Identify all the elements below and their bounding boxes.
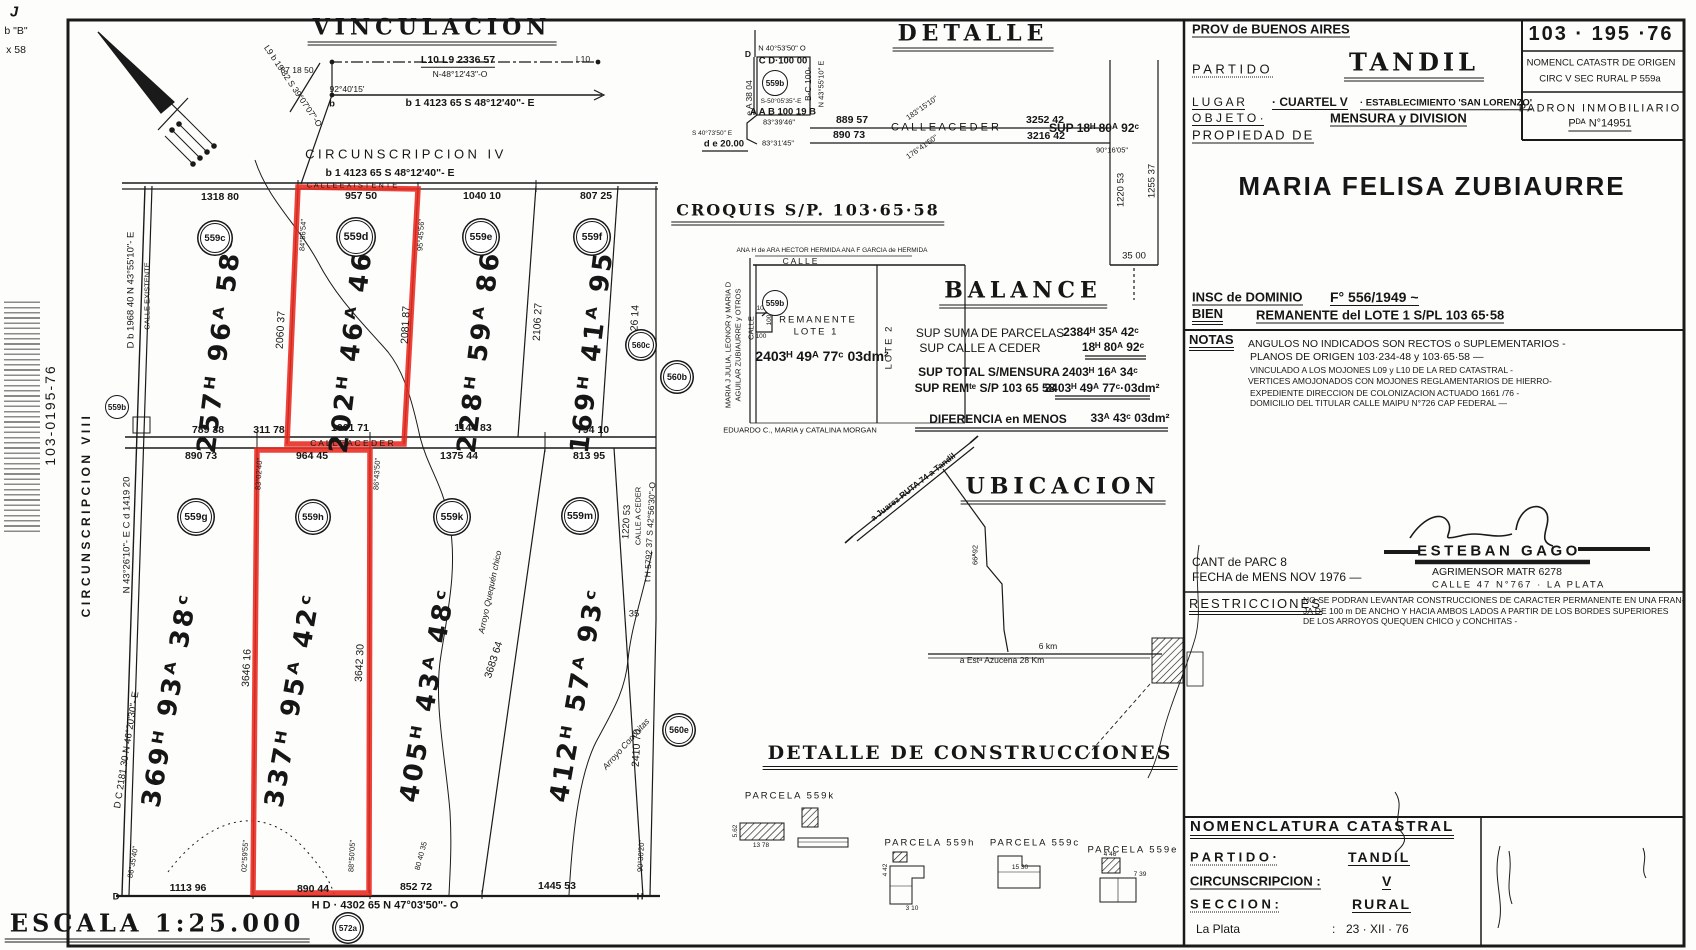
panel-lugar-value: · CUARTEL V: [1272, 96, 1348, 110]
bal-row3-label: SUP TOTAL S/MENSURA: [918, 366, 1060, 378]
dim-852-72: 852 72: [400, 882, 432, 893]
balance-title: BALANCE: [939, 280, 1107, 309]
dim-1001-71: 1001 71: [331, 423, 369, 434]
cr-calle: C A L L E: [783, 257, 818, 266]
dim-789-38: 789 38: [192, 425, 224, 436]
dt-889-57: 889 57: [836, 115, 868, 126]
panel-restricciones-label: RESTRICCIONES: [1189, 597, 1322, 615]
angle-88-50: 88°50'05": [347, 840, 356, 872]
con-dim-1378: 13 78: [753, 843, 769, 850]
con-dim-310: 3 10: [906, 906, 919, 913]
cr-100-b: 100: [767, 315, 774, 326]
cr-calle-vert: CALLE: [747, 316, 755, 340]
dim-3642-30: 3642 30: [354, 644, 366, 682]
panel-surveyor-address: CALLE 47 N°767 · LA PLATA: [1432, 580, 1605, 590]
dt-sup: SUP 18ᴴ 80ᴬ 92ᶜ: [1049, 122, 1139, 134]
panel-bien-value: REMANENTE del LOTE 1 S/PL 103 65·58: [1256, 309, 1504, 324]
panel-restricciones-1: NO SE PODRAN LEVANTAR CONSTRUCCIONES DE …: [1303, 596, 1684, 605]
dim-2106-27: 2106 27: [532, 303, 544, 341]
calle-existente-top: C A L L E E X I S T E N T E: [307, 181, 398, 189]
dt-angle-8331: 83°31'45": [762, 139, 794, 147]
ub-azucena: a Estᵃ Azucena 28 Km: [960, 656, 1044, 665]
con-dim-446: 4 46: [1104, 852, 1117, 859]
corner-mark-x58: x 58: [6, 45, 26, 56]
bearing-left-1: D b 1968 40 N 43°55'10"- E: [126, 232, 136, 349]
dt-ab-100: A A B 100 19 B: [750, 107, 816, 117]
dim-890-73: 890 73: [185, 451, 217, 462]
con-parcela-559e: PARCELA 559e: [1088, 845, 1179, 855]
nc-partido-label: P A R T I D O ·: [1190, 851, 1277, 866]
dim-2081-87: 2081 87: [400, 306, 412, 344]
parcel-badge-572a: 572a: [335, 915, 361, 941]
dim-1445-53: 1445 53: [538, 881, 576, 892]
panel-notas-label: NOTAS: [1189, 333, 1234, 351]
dim-2060-37: 2060 37: [275, 311, 287, 349]
dt-angle-8339: 83°39'46": [763, 118, 795, 126]
dt-bearing-n43: N 43°55'10" E: [817, 61, 825, 108]
con-dim-1530: 15 30: [1012, 865, 1028, 872]
panel-partido-value: TANDIL: [1344, 51, 1484, 82]
ubicacion-title: UBICACION: [961, 476, 1166, 505]
dim-1318-80: 1318 80: [201, 192, 239, 203]
parcel-badge-559k: 559k: [436, 501, 468, 533]
dim-957-50: 957 50: [345, 191, 377, 202]
corner-mark-j: J: [10, 5, 18, 20]
cr-names-top: ANA H de ARA HECTOR HERMIDA ANA F GARCIA…: [737, 248, 928, 255]
approval-signature-marks: [1395, 792, 1646, 928]
ub-6km: 6 km: [1039, 642, 1057, 651]
parcel-badge-559b: 559b: [762, 290, 788, 316]
angle-red1-tl: 84°56'54": [298, 219, 307, 251]
parcel-badge-559e: 559e: [465, 221, 497, 253]
bal-row2-label: SUP CALLE A CEDER: [919, 342, 1040, 354]
dt-1220-53: 1220 53: [1116, 173, 1126, 207]
dt-calle-a-ceder: C A L L E A C E D E R: [891, 123, 999, 134]
margin-stamp-block: [4, 300, 40, 532]
ub-66a92: 66ᴬ92: [971, 545, 979, 565]
dim-807-25: 807 25: [580, 191, 612, 202]
panel-insc-label: INSC de DOMINIO: [1192, 291, 1303, 306]
dim-813-95: 813 95: [573, 451, 605, 462]
dt-35-00: 35 00: [1122, 251, 1146, 261]
nc-place: La Plata: [1196, 923, 1240, 935]
circunscripcion-iv: CIRCUNSCRIPCION IV: [305, 148, 507, 161]
escala: ESCALA 1:25.000: [5, 912, 310, 943]
panel-notas-3: VINCULADO A LOS MOJONES L09 y L10 DE LA …: [1250, 366, 1513, 375]
panel-notas-4: VERTICES AMOJONADOS CON MOJONES REGLAMEN…: [1248, 377, 1552, 386]
angle-red2-tr: 86°43'50": [372, 458, 381, 490]
nc-colon: :: [1332, 923, 1335, 935]
angle-red1-tr: 95°45'56": [416, 219, 425, 251]
panel-surveyor-name: ESTEBAN GAGO: [1417, 544, 1581, 559]
panel-owner: MARIA FELISA ZUBIAURRE: [1238, 173, 1625, 199]
cr-remanente: REMANENTE: [779, 315, 857, 325]
con-dim-442: 4 42: [883, 864, 890, 877]
vinculacion-diagram: [290, 60, 604, 184]
parcel-badge-560e: 560e: [665, 716, 693, 744]
panel-notas-6: DOMICILIO DEL TITULAR CALLE MAIPU N°726 …: [1250, 399, 1507, 408]
vinc-b1-line: b 1 4123 65 S 48°12'40"- E: [405, 98, 534, 109]
parcel-badge-559m: 559m: [564, 500, 596, 532]
panel-restricciones-2: JA DE 100 m DE ANCHO Y HACIA AMBOS LADOS…: [1303, 607, 1668, 616]
panel-padron-1: PADRON INMOBILIARIO: [1519, 104, 1681, 115]
bal-row5-value: 33ᴬ 43ᶜ 03dm²: [1090, 412, 1169, 424]
construcciones-sketches: [740, 808, 1136, 904]
nc-seccion-value: RURAL: [1352, 897, 1411, 913]
panel-padron-2: Pᴰᴬ N°14951: [1568, 119, 1631, 132]
panel-prov: PROV de BUENOS AIRES: [1192, 23, 1350, 38]
con-parcela-559k: PARCELA 559k: [745, 791, 835, 801]
dt-1255-37: 1255 37: [1147, 164, 1157, 198]
panel-plan-number: 103 · 195 ·76: [1529, 24, 1674, 44]
vinculacion-title: VINCULACION: [308, 17, 557, 46]
dim-1113-96: 1113 96: [170, 883, 207, 894]
panel-bien-label: BIEN: [1192, 307, 1223, 325]
angle-02-59: 02°59'55": [240, 840, 249, 872]
panel-insc-value: F° 556/1949 ~: [1330, 290, 1419, 306]
cr-names-left-1: MARIA J JULIA, LEONOR y MARIA D: [724, 282, 732, 408]
surveyor-signature: [1410, 507, 1553, 546]
dim-1144-83: 1144 83: [454, 423, 491, 434]
vinc-l10: L10: [576, 55, 590, 64]
bearing-left-2: N 43°26'10"- E C d 1419 20: [122, 477, 132, 594]
vinc-angle-92: 92°40'15': [329, 85, 364, 94]
con-dim-562: 5.62: [733, 825, 740, 838]
dim-890-44: 890 44: [297, 884, 329, 895]
dt-point-d: D: [745, 50, 751, 59]
cr-superficie: 2403ᴴ 49ᴬ 77ᶜ 03dm²: [755, 349, 888, 363]
dim-311-78: 311 78: [253, 425, 285, 436]
panel-notas-5: EXPEDIENTE DIRECCION DE COLONIZACION ACT…: [1250, 389, 1519, 398]
parcel-badge-559c: 559c: [200, 223, 230, 253]
reg-number-vertical: 103-0195-76: [43, 364, 57, 465]
detalle-title: DETALLE: [893, 23, 1054, 52]
panel-partido-label: PARTIDO: [1192, 63, 1273, 78]
dim-964-45: 964 45: [296, 451, 328, 462]
panel-nomencl-2: CIRC V SEC RURAL P 559a: [1539, 74, 1660, 84]
vinc-point-b: b: [329, 99, 335, 109]
calle-a-ceder-right: CALLE A CEDER: [634, 487, 642, 545]
dt-cd-100: C D·100 00: [759, 56, 808, 66]
panel-surveyor-title: AGRIMENSOR MATR 6278: [1432, 567, 1562, 578]
map-bearing-top: b 1 4123 65 S 48°12'40"- E: [325, 168, 454, 179]
bal-row2-value: 18ᴴ 80ᴬ 92ᶜ: [1082, 341, 1144, 353]
dt-s50: S-50°05'35"-E: [761, 99, 802, 106]
panel-fecha-mens: FECHA de MENS NOV 1976 —: [1192, 571, 1361, 583]
angle-red2-tl: 83°02'40": [254, 458, 263, 490]
dim-1040-10: 1040 10: [463, 191, 501, 202]
parcel-badge-559f: 559f: [576, 221, 608, 253]
corner-mark-b: b "B": [4, 26, 27, 37]
nc-circ-value: V: [1382, 874, 1391, 890]
calle-existente-left: CALLE EXISTENTE: [143, 262, 151, 330]
dt-angle-9016: 90°16'05": [1096, 146, 1128, 154]
bal-row1-value: 2384ᴴ 35ᴬ 42ᶜ: [1063, 326, 1139, 338]
panel-propiedad-label: PROPIEDAD DE: [1192, 129, 1314, 144]
dim-35: 35: [629, 609, 640, 619]
parcel-map-lines: [116, 180, 660, 899]
dt-bearing-n40: N 40°53'50" O: [758, 44, 806, 52]
panel-lugar-value2: · ESTABLECIMIENTO 'SAN LORENZO': [1360, 98, 1532, 110]
nomenclatura-title: NOMENCLATURA CATASTRAL: [1190, 819, 1454, 839]
nc-seccion-label: S E C C I O N :: [1190, 898, 1279, 913]
nc-partido-value: TANDIL: [1348, 850, 1410, 866]
parcel-badge-559b: 559b: [762, 70, 788, 96]
point-d: D: [113, 892, 120, 902]
cr-lote1: LOTE 1: [794, 327, 839, 337]
construcciones-title: DETALLE DE CONSTRUCCIONES: [763, 744, 1178, 770]
cr-lote2: LOTE 2: [884, 325, 894, 370]
parcel-badge-559b: 559b: [105, 395, 129, 419]
panel-lugar-label: L U G A R: [1192, 96, 1245, 110]
con-parcela-559h: PARCELA 559h: [885, 838, 976, 848]
panel-notas-1: ANGULOS NO INDICADOS SON RECTOS o SUPLEM…: [1248, 339, 1566, 350]
parcel-badge-560b: 560b: [663, 363, 691, 391]
dim-1220-53-map: 1220 53: [621, 505, 632, 540]
nc-date: 23 · XII · 76: [1346, 923, 1409, 935]
survey-plan-sheet: Jb "B"x 58103-0195-76CIRCUNSCRIPCION VII…: [0, 0, 1696, 950]
croquis-title: CROQUIS S/P. 103·65·58: [671, 203, 944, 226]
dt-de-20: d e 20.00: [704, 139, 744, 149]
panel-nomencl-1: NOMENCL CATASTR DE ORIGEN: [1527, 58, 1676, 68]
nc-circ-label: CIRCUNSCRIPCION :: [1190, 875, 1321, 890]
dim-3646-16: 3646 16: [241, 649, 253, 687]
cr-names-left-2: AGUILAR ZUBIAURRE y OTROS: [734, 289, 742, 402]
cr-names-bottom: EDUARDO C., MARIA y CATALINA MORGAN: [723, 426, 877, 434]
cr-100-c: 100: [756, 334, 767, 341]
angle-90-30: 90°30'20": [636, 840, 645, 872]
map-bearing-bottom: H D · 4302 65 N 47°03'50"- O: [312, 901, 459, 912]
panel-restricciones-3: DE LOS ARROYOS QUEQUEN CHICO y CONCHITAS…: [1303, 617, 1517, 626]
bal-row1-label: SUP SUMA DE PARCELAS: [916, 327, 1064, 339]
vinc-l10-l9: L10 L9 2336 57: [421, 55, 495, 68]
parcel-badge-559d: 559d: [339, 220, 373, 254]
panel-objeto-label: O B J E T O ·: [1192, 112, 1264, 126]
parcel-badge-559h: 559h: [298, 502, 328, 532]
parcel-badge-560c: 560c: [628, 332, 654, 358]
calle-a-ceder-road: C A L L E A C E D E R: [310, 439, 393, 448]
north-arrow-icon: [98, 32, 216, 166]
dt-890-73: 890 73: [833, 130, 865, 141]
con-parcela-559c: PARCELA 559c: [990, 838, 1080, 848]
con-dim-739: 7 39: [1134, 872, 1147, 879]
panel-notas-2: PLANOS DE ORIGEN 103·234-48 y 103·65·58 …: [1250, 352, 1483, 363]
dt-ea-38: e A 38 04: [745, 80, 754, 115]
parcel-badge-559g: 559g: [180, 501, 212, 533]
dim-794-10: 794 10: [577, 425, 609, 436]
point-h: H: [637, 892, 644, 902]
circunscripcion-viii: CIRCUNSCRIPCION VIII: [80, 413, 92, 618]
vinc-bearing1: N-48°12'43"-O: [433, 70, 488, 79]
bal-row5-label: DIFERENCIA en MENOS: [929, 413, 1067, 425]
panel-objeto-value: MENSURA y DIVISION: [1330, 112, 1467, 127]
bal-row3-value: 2403ᴴ 16ᴬ 34ᶜ: [1062, 366, 1138, 378]
dt-bc-100: B-C 100-: [804, 67, 813, 101]
panel-cant-parc: CANT de PARC 8: [1192, 556, 1287, 568]
bal-row4-label: SUP REMᵗᵉ S/P 103 65 58: [915, 382, 1056, 394]
dt-s40: S 40°73'50" E: [692, 131, 732, 138]
bal-row4-value: 2403ᴴ 49ᴬ 77ᶜ·03dm²: [1044, 382, 1159, 394]
dim-1375-44: 1375 44: [440, 451, 478, 462]
